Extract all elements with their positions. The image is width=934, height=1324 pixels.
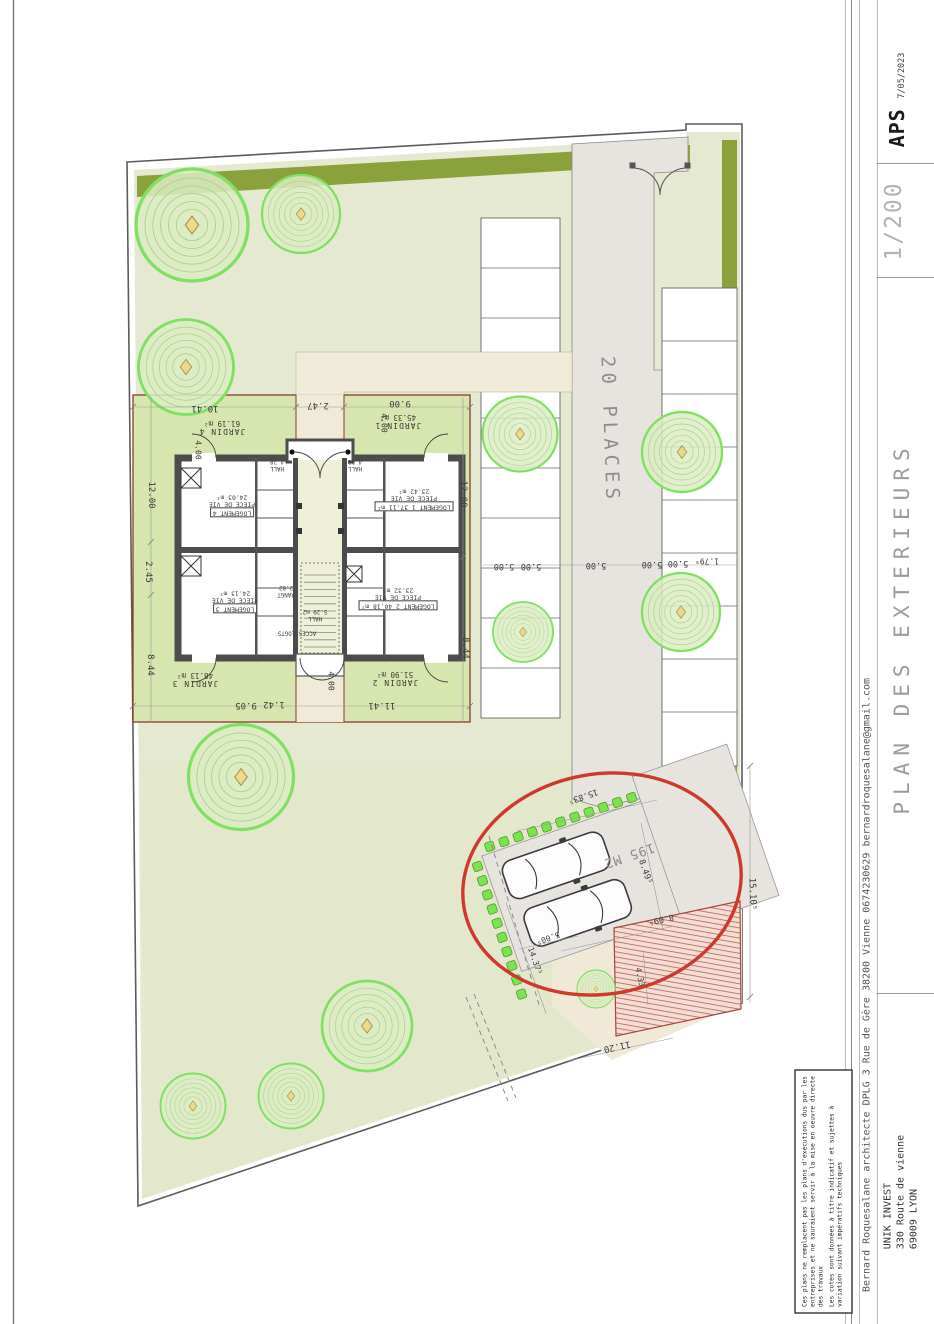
- phase-label: APS: [885, 108, 909, 147]
- tree-icon: [322, 981, 412, 1071]
- tree-icon: [139, 320, 234, 415]
- client-address: 330 Route de vienne: [895, 1135, 908, 1249]
- dimension-label: 5.00: [494, 561, 514, 571]
- unit-label: LOGEMENT 1 37.11 m² PIECE DE VIE 23.42 m…: [374, 487, 453, 512]
- garden-label: JARDIN 4 61.19 m²: [199, 418, 246, 436]
- tree-icon: [642, 573, 720, 651]
- sheet-title: PLAN DES EXTERIEURS: [890, 441, 914, 814]
- room-label: HALL 5.29 m2: [303, 607, 327, 621]
- room-label: ACCES LOGTS: [278, 629, 316, 636]
- dimension-label: 10.41: [191, 403, 218, 413]
- dimension-label: 8.44: [460, 637, 470, 659]
- dimension-label: 5.00: [521, 561, 541, 571]
- unit-label: LOGEMENT 4 PIECE DE VIE 24.03 m²: [209, 493, 255, 518]
- tree-icon: [189, 725, 294, 830]
- room-label: HALL 4.28: [270, 457, 284, 471]
- client-name: UNIK INVEST: [882, 1135, 895, 1249]
- plan-sheet: { "title_block": { "phase_label": "APS",…: [0, 0, 934, 1324]
- tree-icon: [136, 169, 248, 281]
- disclaimer-text: Ces plans ne remplacent pas les plans d'…: [801, 1075, 844, 1307]
- tree-icon: [577, 970, 615, 1008]
- tree-icon: [493, 602, 553, 662]
- dimension-label: 15.10⁵: [746, 878, 757, 911]
- dimension-label: 9.00: [389, 398, 411, 408]
- dimension-label: 5.00: [642, 559, 662, 569]
- dimension-label: 12.00: [458, 480, 468, 507]
- dimension-label: 1.42: [263, 699, 285, 709]
- phase-block: APS 7/05/2023: [885, 53, 909, 148]
- client-block: UNIK INVEST 330 Route de vienne 69009 LY…: [882, 1135, 921, 1249]
- dimension-label: 1.79⁵: [695, 557, 719, 566]
- dimension-label: 9.05: [235, 700, 257, 710]
- tree-icon: [642, 412, 722, 492]
- unit-label: LOGEMENT 3 PIECE DE VIE 24.13 m²: [212, 589, 258, 614]
- room-label: RANGT 2.02: [277, 583, 294, 597]
- garden-label: JARDIN 2 51.90 m²: [372, 669, 419, 687]
- room-label: HALL 4.28: [348, 457, 362, 471]
- tree-icon: [483, 397, 558, 472]
- site-plan-drawing: [0, 0, 934, 1324]
- dimension-label: 8.44: [145, 654, 155, 676]
- dimension-label: 2.45: [143, 561, 153, 583]
- dimension-label: 12.00: [146, 481, 156, 508]
- garden-label: JARDIN 3 48.13 m²: [172, 670, 219, 688]
- building: [178, 434, 462, 682]
- unit-label: LOGEMENT 2 40.18 m² PIECE DE VIE 23.32 m…: [358, 586, 437, 611]
- dimension-label: 11.41: [368, 700, 395, 710]
- tree-icon: [262, 175, 340, 253]
- dimension-label: 4.00: [194, 440, 203, 459]
- walkway-top: [296, 352, 572, 395]
- dimension-label: 4.00: [327, 671, 336, 690]
- dimension-label: 5.00: [668, 558, 688, 568]
- dimension-label: 5.00: [586, 560, 606, 570]
- scale-label: 1/200: [881, 181, 907, 260]
- tree-icon: [259, 1064, 324, 1129]
- client-address: 69009 LYON: [908, 1135, 921, 1249]
- architect-credit: Bernard Roquesalane architecte DPLG 3 Ru…: [862, 678, 873, 1292]
- garden-label: JARDIN 1 45.33 m²: [375, 412, 422, 430]
- parking-stalls-right: [662, 288, 737, 766]
- date-label: 7/05/2023: [897, 53, 907, 99]
- dimension-label: 2.47: [307, 400, 329, 410]
- tree-icon: [161, 1074, 226, 1139]
